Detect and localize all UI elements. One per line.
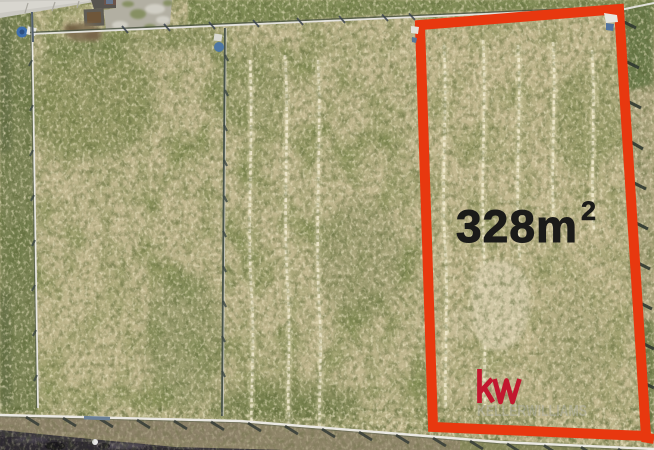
svg-text:2: 2 [581,196,596,226]
svg-text:KELLERWILLIAMS: KELLERWILLIAMS [477,403,587,420]
svg-text:328m: 328m [456,201,578,252]
